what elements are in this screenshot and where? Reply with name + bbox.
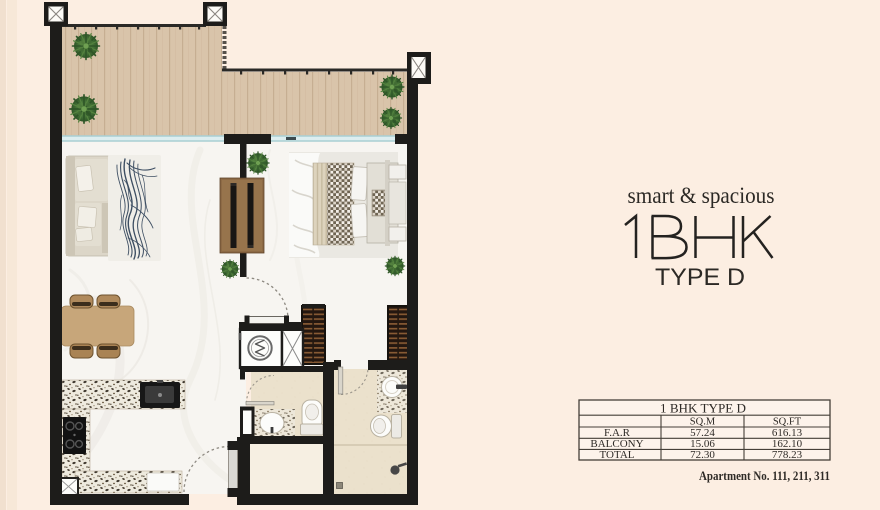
svg-text:Apartment No. 111, 211, 311: Apartment No. 111, 211, 311: [699, 468, 830, 483]
svg-text:F.A.R: F.A.R: [604, 427, 631, 439]
svg-text:TOTAL: TOTAL: [600, 449, 635, 461]
svg-text:1 BHK TYPE D: 1 BHK TYPE D: [660, 401, 746, 416]
svg-text:TYPE D: TYPE D: [655, 264, 745, 291]
svg-text:57.24: 57.24: [690, 427, 715, 439]
svg-text:smart & spacious: smart & spacious: [628, 183, 775, 208]
svg-text:616.13: 616.13: [772, 427, 803, 439]
svg-text:778.23: 778.23: [772, 449, 803, 461]
svg-text:72.30: 72.30: [690, 449, 715, 461]
